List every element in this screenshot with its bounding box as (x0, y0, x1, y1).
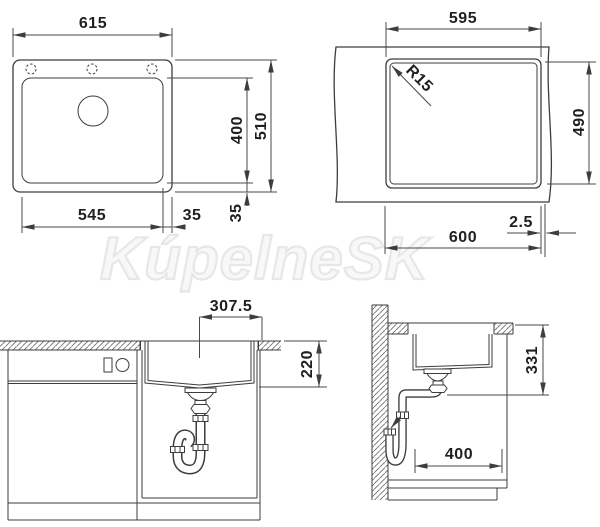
left-cabinet (8, 350, 137, 520)
sink-dimension-drawing: 615 400 510 545 35 35 R15 (0, 0, 600, 527)
cutout-view: R15 595 490 600 2.5 (334, 10, 596, 257)
dim-bowl-height: 400 (229, 116, 246, 144)
strainer-side-flange (424, 369, 451, 374)
dim-center-to-edge: 307.5 (210, 298, 253, 315)
worktop-outline (334, 47, 551, 202)
tap-hole-left (26, 64, 36, 74)
tap-hole-center (87, 64, 97, 74)
dim-cutout-width: 595 (449, 10, 477, 27)
top-view: 615 400 510 545 35 35 (13, 15, 277, 233)
sink-cabinet-front (8, 350, 260, 520)
dim-cabinet-clearance: 400 (445, 446, 473, 463)
dim-edge-offset: 2.5 (509, 214, 533, 231)
dim-bottom-offset: 35 (228, 204, 245, 223)
siphon-side (384, 369, 451, 462)
control-panel-rect (104, 358, 112, 372)
strainer-flange (185, 388, 216, 393)
dim-bowl-depth: 220 (299, 350, 316, 378)
bowl-outline (22, 78, 163, 183)
wall-hatch (372, 305, 388, 500)
worktop-right-hatch (258, 341, 281, 350)
technical-drawing-page: KúpelneSK 615 400 (0, 0, 600, 527)
dim-overall-width: 615 (79, 15, 107, 32)
dim-bowl-width: 545 (78, 207, 106, 224)
drain-circle (78, 96, 108, 126)
dim-overall-height: 510 (253, 112, 270, 140)
side-view: 331 400 (372, 305, 549, 500)
dim-corner-radius: R15 (402, 62, 436, 96)
dim-outlet-height: 331 (524, 346, 541, 374)
dim-side-offset: 35 (183, 207, 202, 224)
tap-hole-right (147, 64, 157, 74)
bowl-side-section (413, 334, 492, 370)
dim-cabinet-width: 600 (449, 229, 477, 246)
siphon-front (171, 388, 217, 470)
front-view: 307.5 220 (0, 298, 327, 520)
control-panel-knob (116, 359, 129, 372)
worktop-left-hatch (0, 341, 140, 350)
dim-cutout-height: 490 (571, 108, 588, 136)
